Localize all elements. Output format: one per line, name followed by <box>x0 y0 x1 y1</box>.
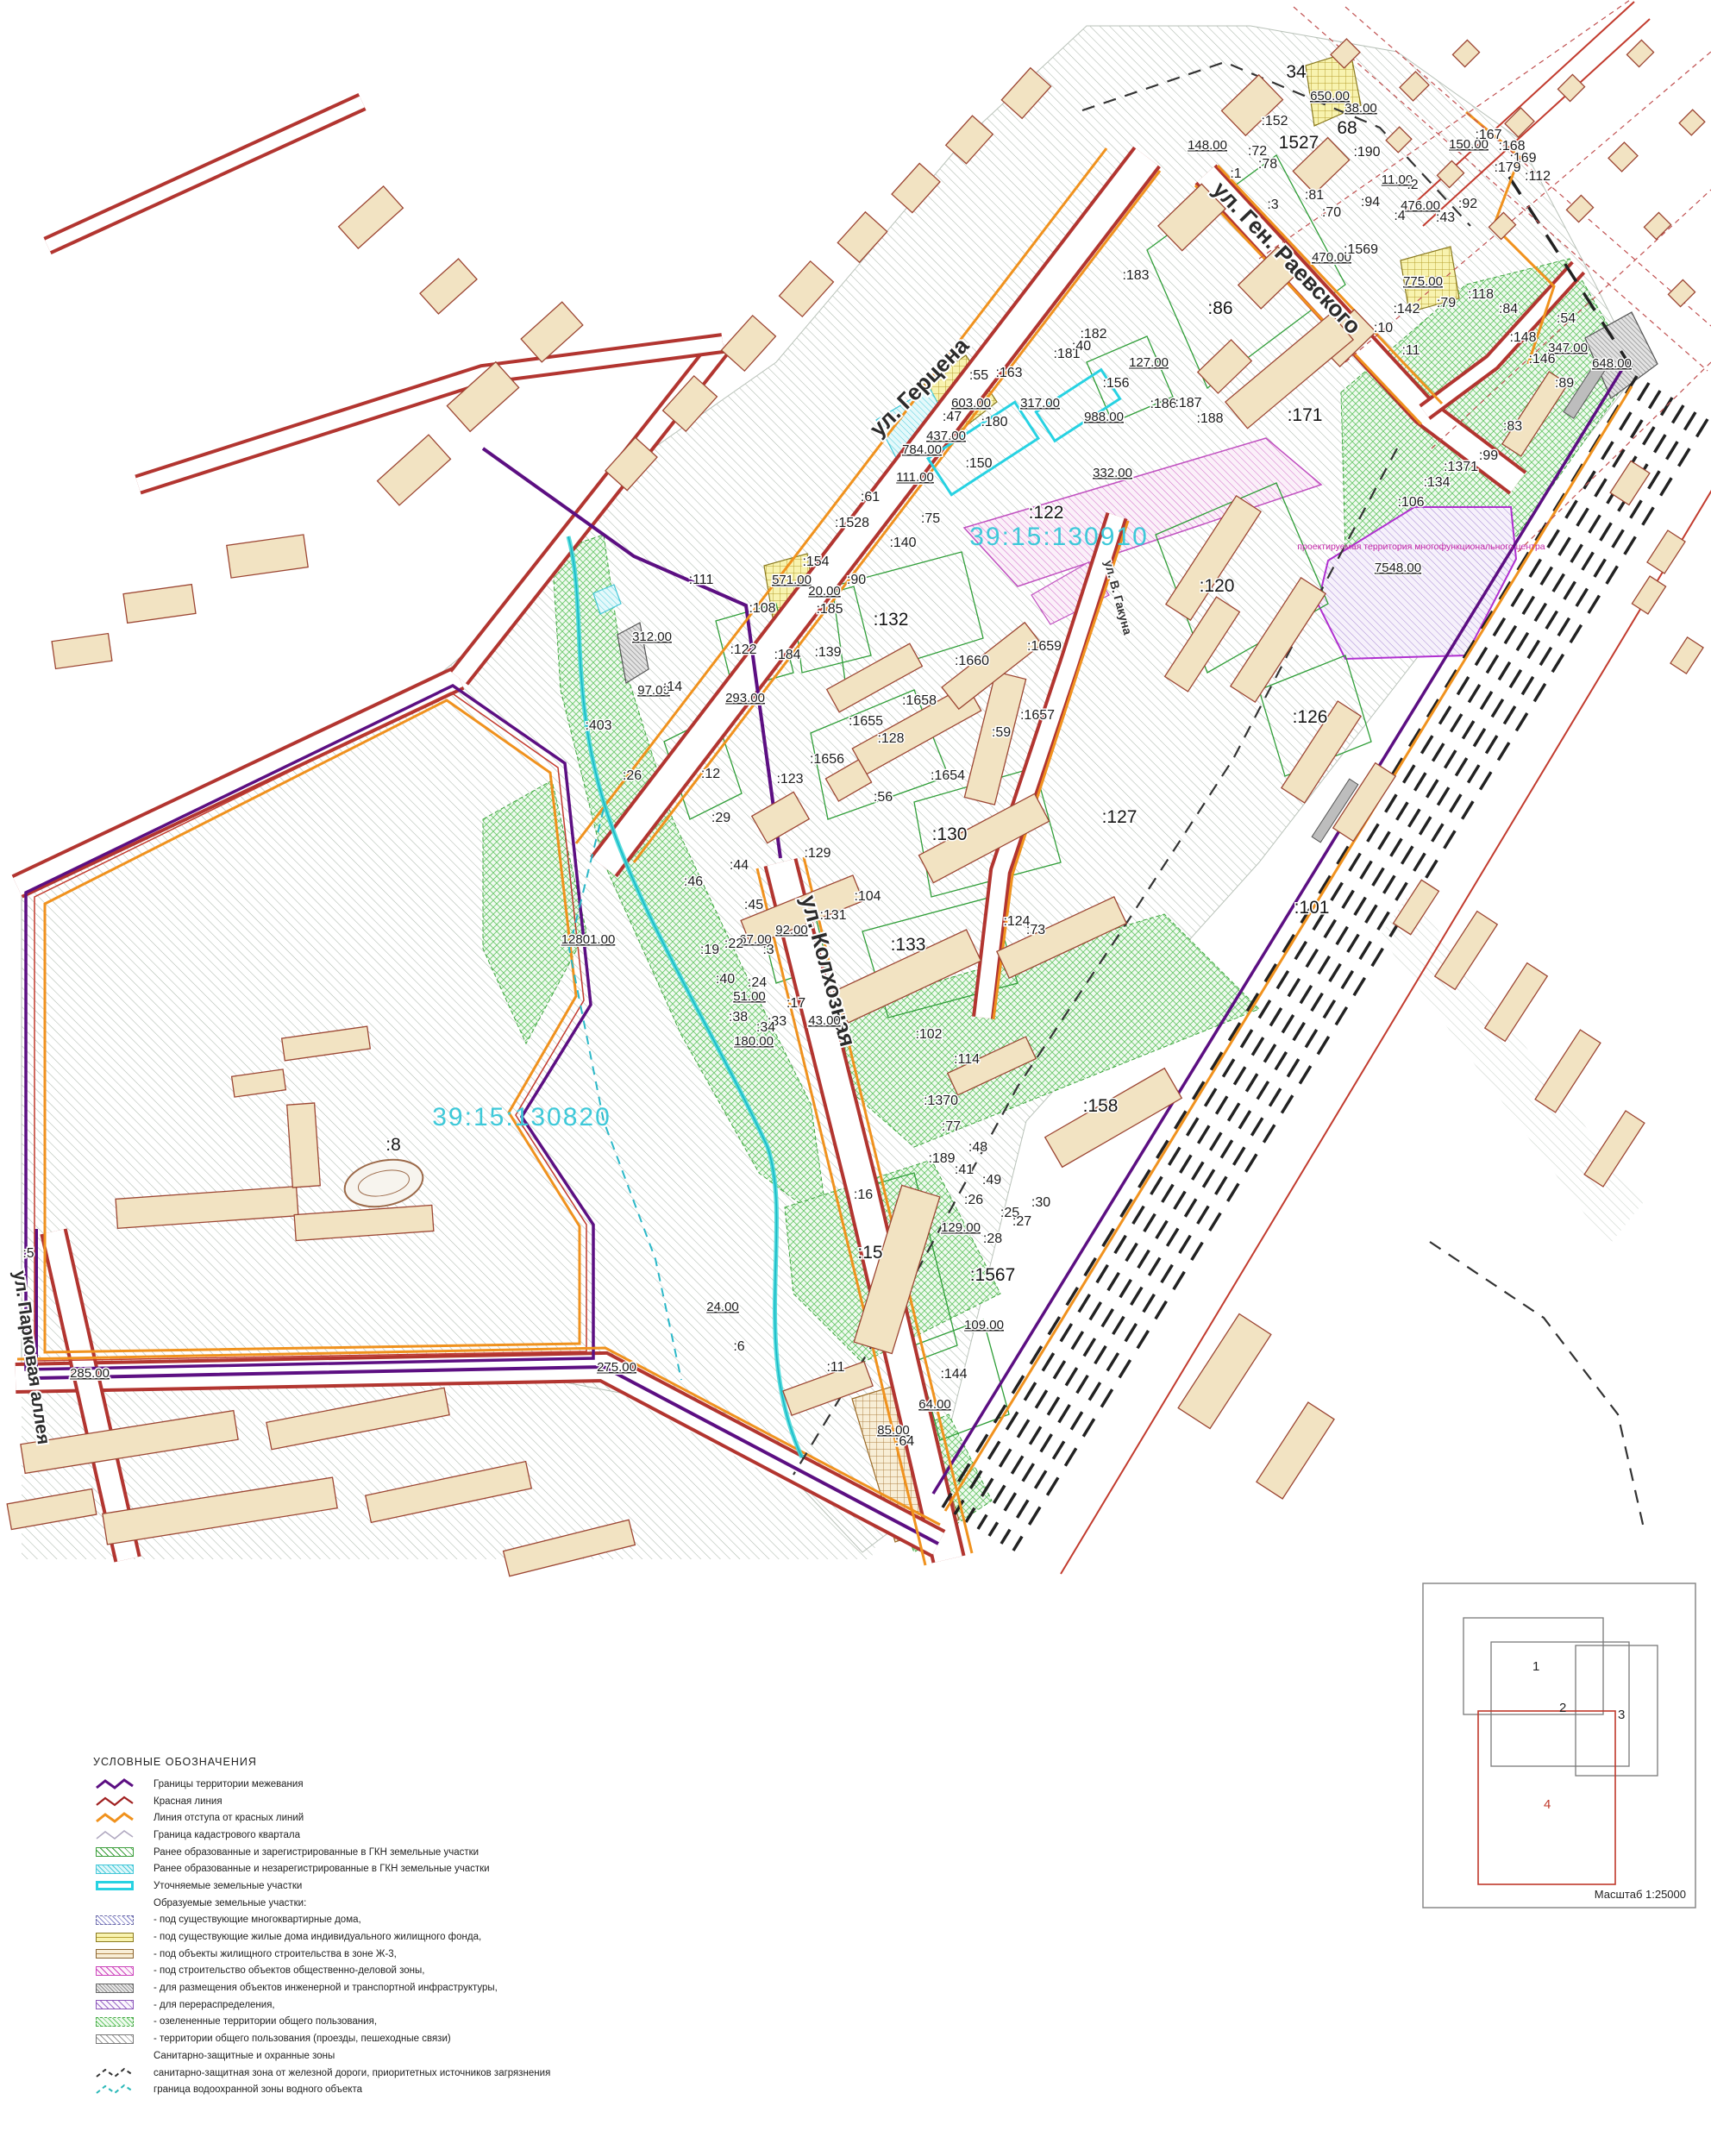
building-footprint <box>1668 279 1695 306</box>
parcel-number-label: :64 <box>895 1434 914 1449</box>
legend-item-label: санитарно-защитная зона от железной доро… <box>154 2068 550 2078</box>
parcel-number-label: :189 <box>928 1151 955 1166</box>
parcel-number-label: :139 <box>814 645 841 660</box>
legend-swatch-rect-purple-hatch <box>93 2000 136 2009</box>
overview-inset-map: 1 2 3 4 Масштаб 1:25000 <box>1422 1583 1698 1915</box>
parcel-number-label: :17 <box>787 996 805 1011</box>
dimension-label: 127.00 <box>1129 355 1169 370</box>
parcel-number-label: :146 <box>1528 352 1555 367</box>
parcel-number-label: :4 <box>1394 209 1405 223</box>
legend-swatch-zigzag-purple <box>93 1777 136 1791</box>
legend-item: Линия отступа от красных линий <box>93 1809 1042 1827</box>
legend-title: УСЛОВНЫЕ ОБОЗНАЧЕНИЯ <box>93 1756 1042 1768</box>
dimension-label: 648.00 <box>1592 356 1632 371</box>
parcel-number-label: :102 <box>915 1027 942 1042</box>
parcel-number-label: :152 <box>1261 114 1288 128</box>
inset-region-1-label: 1 <box>1532 1659 1539 1674</box>
legend-item-label: Образуемые земельные участки: <box>154 1898 306 1908</box>
dimension-label: 51.00 <box>733 989 766 1004</box>
parcel-number-label: :1657 <box>1020 708 1055 723</box>
building-footprint <box>1566 195 1593 222</box>
legend-swatch-rect-blue-hatch <box>93 1915 136 1925</box>
parcel-number-label: :79 <box>1437 296 1456 310</box>
parcel-number-label: :179 <box>1494 160 1520 175</box>
parcel-number-label: :16 <box>854 1188 873 1202</box>
legend-swatch-zigzag-gray <box>93 1828 136 1842</box>
parcel-number-label: :1659 <box>1027 639 1062 654</box>
parcel-number-label: :163 <box>995 366 1022 380</box>
parcel-number-label: :112 <box>1525 169 1551 184</box>
parcel-number-label: :118 <box>1468 287 1494 302</box>
building-footprint <box>123 585 196 624</box>
parcel-number-label: :8 <box>385 1135 401 1155</box>
parcel-number-label: :77 <box>942 1119 961 1134</box>
parcel-number-label: :46 <box>684 874 703 889</box>
dimension-label: 24.00 <box>706 1300 739 1314</box>
legend-item-label: Границы территории межевания <box>154 1779 304 1789</box>
legend-swatch-rect-cyan-hatch <box>93 1865 136 1874</box>
dimension-label: 111.00 <box>896 470 934 485</box>
building-footprint <box>1257 1402 1334 1499</box>
parcel-number-label: :56 <box>874 790 893 805</box>
parcel-number-label: :123 <box>776 772 803 787</box>
inset-region-2-label: 2 <box>1559 1701 1566 1715</box>
dimension-label: 180.00 <box>734 1034 774 1049</box>
legend-item-label: Линия отступа от красных линий <box>154 1813 304 1823</box>
parcel-number-label: :129 <box>804 846 830 861</box>
dimension-label: 148.00 <box>1188 138 1227 153</box>
dimension-label: 775.00 <box>1403 274 1443 289</box>
dimension-label: 38.00 <box>1344 101 1377 116</box>
legend-item: Ранее образованные и незарегистрированны… <box>93 1860 1042 1877</box>
page: ул. Герценаул. Ген. Раевскогоул. Колхозн… <box>0 0 1711 2156</box>
dimension-label: 285.00 <box>70 1366 110 1381</box>
legend-item-label: - территории общего пользования (проезды… <box>154 2034 451 2044</box>
parcel-number-label: :75 <box>921 511 940 526</box>
legend-swatch-rect-pink-hatch <box>93 1966 136 1976</box>
parcel-number-label: :6 <box>733 1339 744 1354</box>
parcel-number-label: :40 <box>1072 339 1091 354</box>
parcel-number-label: :122 <box>730 642 756 657</box>
parcel-number-label: :29 <box>711 811 730 825</box>
dimension-label: 7548.00 <box>1375 561 1421 575</box>
legend-item: Образуемые земельные участки: <box>93 1895 1042 1912</box>
legend-item: - под объекты жилищного строительства в … <box>93 1946 1042 1963</box>
parcel-number-label: :3 <box>762 943 774 957</box>
legend-item-label: граница водоохранной зоны водного объект… <box>154 2084 362 2095</box>
legend-swatch-zigzag-darkred <box>93 1795 136 1808</box>
building-footprint <box>1557 74 1584 101</box>
parcel-number-label: :150 <box>965 456 992 471</box>
parcel-number-label: :38 <box>729 1010 748 1025</box>
inset-region-3-label: 3 <box>1618 1708 1625 1722</box>
legend-swatch-rect-gray-hatch <box>93 2034 136 2044</box>
building-footprint <box>420 259 477 314</box>
legend-item: - для размещения объектов инженерной и т… <box>93 1979 1042 1996</box>
parcel-number-label: :99 <box>1479 448 1498 463</box>
legend-swatch-zigzag-orange <box>93 1811 136 1825</box>
parcel-number-label: :43 <box>1436 210 1455 225</box>
parcel-number-label: :73 <box>1026 923 1045 937</box>
legend-item-label: Уточняемые земельные участки <box>154 1881 302 1891</box>
parcel-number-label: :185 <box>816 602 843 617</box>
building-footprint <box>1647 530 1685 573</box>
legend-item: - территории общего пользования (проезды… <box>93 2030 1042 2047</box>
parcel-number-label: :186 <box>1150 397 1176 411</box>
parcel-number-label: :26 <box>623 768 642 783</box>
parcel-number-label: :144 <box>940 1367 967 1382</box>
parcel-number-label: :22 <box>724 937 743 951</box>
parcel-number-label: :19 <box>700 943 719 957</box>
legend-swatch-rect-green-cross <box>93 2017 136 2027</box>
parcel-number-label: :148 <box>1509 330 1536 345</box>
parcel-number-label: :83 <box>1503 419 1522 434</box>
building-footprint <box>227 535 308 578</box>
dimension-label: 476.00 <box>1401 198 1440 213</box>
dimension-label: 437.00 <box>926 429 966 443</box>
parcel-number-label: :154 <box>802 555 829 569</box>
inset-scale-label: Масштаб 1:25000 <box>1595 1888 1686 1901</box>
parcel-number-label: :180 <box>981 415 1007 429</box>
dimension-label: 12801.00 <box>561 932 616 947</box>
legend-swatch-rect-cyan-border <box>93 1881 136 1890</box>
parcel-number-label: :15 <box>857 1243 882 1263</box>
parcel-number-label: :89 <box>1555 376 1574 391</box>
dimension-label: 332.00 <box>1093 466 1132 480</box>
parcel-number-label: :120 <box>1200 576 1235 596</box>
parcel-number-label: :403 <box>585 718 611 733</box>
parcel-number-label: :131 <box>819 908 846 923</box>
parcel-number-label: :1569 <box>1344 242 1378 257</box>
parcel-number-label: :55 <box>969 368 988 383</box>
parcel-number-label: :108 <box>749 601 775 616</box>
dimension-label: 317.00 <box>1020 396 1060 411</box>
parcel-number-label: :94 <box>1361 195 1380 210</box>
parcel-number-label: :78 <box>1258 157 1277 172</box>
parcel-number-label: :3 <box>1267 197 1278 212</box>
parcel-number-label: :11 <box>1401 343 1420 358</box>
parcel-number-label: :1656 <box>810 752 844 767</box>
dimension-label: 312.00 <box>632 630 672 644</box>
parcel-number-label: :158 <box>1083 1096 1119 1116</box>
parcel-number-label: :114 <box>954 1052 980 1067</box>
parcel-number-label: :27 <box>1012 1214 1031 1229</box>
dimension-label: 571.00 <box>772 573 812 587</box>
building-footprint <box>1485 963 1548 1042</box>
parcel-number-label: :128 <box>877 731 904 746</box>
building-footprint <box>339 186 404 248</box>
parcel-number-label: :171 <box>1288 405 1323 425</box>
legend-item: Уточняемые земельные участки <box>93 1877 1042 1895</box>
legend-item: Границы территории межевания <box>93 1776 1042 1793</box>
legend-item-label: - озелененные территории общего пользова… <box>154 2016 377 2027</box>
parcel-number-label: :190 <box>1353 145 1380 160</box>
parcel-number-label: :127 <box>1102 807 1138 827</box>
legend-item: - под строительство объектов общественно… <box>93 1963 1042 1980</box>
legend-item: - под существующие многоквартирные дома, <box>93 1912 1042 1929</box>
parcel-number-label: :1 <box>1230 166 1241 181</box>
inset-region-4-label: 4 <box>1544 1797 1551 1812</box>
building-footprint <box>722 316 776 371</box>
parcel-number-label: :28 <box>983 1232 1002 1246</box>
parcel-number-label: :133 <box>891 935 926 955</box>
parcel-number-label: 1527 <box>1279 133 1319 153</box>
legend-item: - под существующие жилые дома индивидуал… <box>93 1928 1042 1946</box>
legend-item-label: - для перераспределения, <box>154 2000 275 2010</box>
parcel-number-label: :86 <box>1207 298 1232 318</box>
parcel-number-label: :24 <box>748 975 767 990</box>
parcel-number-label: :47 <box>943 410 962 424</box>
parcel-number-label: :26 <box>964 1193 983 1207</box>
building-footprint <box>378 435 451 505</box>
legend-item: Санитарно-защитные и охранные зоны <box>93 2047 1042 2065</box>
cadastral-quarter-label: 39:15:130910 <box>969 523 1149 551</box>
parcel-number-label: :1370 <box>924 1094 958 1108</box>
legend-swatch-rect-tan-grid <box>93 1949 136 1959</box>
parcel-number-label: :1654 <box>931 768 965 783</box>
parcel-number-label: :81 <box>1305 188 1324 203</box>
legend-swatch-rect-green-hatch <box>93 1847 136 1857</box>
parcel-number-label: :126 <box>1293 707 1328 727</box>
legend-item-label: - под строительство объектов общественно… <box>154 1965 425 1976</box>
parcel-number-label: 34 <box>1286 62 1307 82</box>
parcel-number-label: :30 <box>1031 1195 1050 1210</box>
building-footprint <box>1178 1314 1271 1429</box>
dimension-label: 109.00 <box>964 1318 1004 1332</box>
legend-item: Ранее образованные и зарегистрированные … <box>93 1844 1042 1861</box>
parcel-number-label: :90 <box>847 573 866 587</box>
legend-item-label: - под существующие многоквартирные дома, <box>154 1915 361 1925</box>
parcel-number-label: :54 <box>1557 311 1576 326</box>
parcel-number-label: :142 <box>1393 302 1420 317</box>
building-footprint <box>1535 1030 1601 1112</box>
dimension-label: 784.00 <box>902 442 942 457</box>
legend-swatch-rect-yellow-grid <box>93 1933 136 1942</box>
building-footprint <box>1608 142 1638 172</box>
inset-svg: 1 2 3 4 Масштаб 1:25000 <box>1422 1583 1698 1910</box>
parcel-number-label: :101 <box>1294 898 1330 918</box>
parcel-number-label: :59 <box>992 725 1011 740</box>
parcel-number-label: :40 <box>716 972 735 987</box>
building-footprint <box>1644 212 1670 239</box>
parcel-number-label: 68 <box>1337 118 1357 138</box>
cadastral-quarter-label: 39:15:130820 <box>432 1103 611 1131</box>
building-footprint <box>1679 110 1705 135</box>
dimension-label: 603.00 <box>951 396 991 411</box>
dimension-label: 275.00 <box>597 1360 636 1375</box>
parcel-number-label: :44 <box>730 858 749 873</box>
parcel-number-label: :104 <box>854 889 881 904</box>
parcel-number-label: :92 <box>1458 197 1477 211</box>
legend: УСЛОВНЫЕ ОБОЗНАЧЕНИЯ Границы территории … <box>93 1756 1042 2098</box>
dimension-label: 293.00 <box>725 691 765 705</box>
parcel-number-label: :41 <box>955 1163 974 1177</box>
building-footprint <box>52 634 112 669</box>
legend-item-label: Ранее образованные и незарегистрированны… <box>154 1864 490 1874</box>
zone-note-label: проектируемая территория многофункционал… <box>1297 542 1545 552</box>
parcel-number-label: :1655 <box>849 714 883 729</box>
dimension-label: 988.00 <box>1084 410 1124 424</box>
parcel-number-label: :106 <box>1397 495 1424 510</box>
building-footprint <box>1632 576 1665 614</box>
building-footprint <box>287 1103 321 1188</box>
legend-item-label: Красная линия <box>154 1796 222 1807</box>
parcel-number-label: :184 <box>774 648 800 662</box>
parcel-number-label: :12 <box>701 767 720 781</box>
parcel-number-label: :1371 <box>1444 460 1478 474</box>
parcel-number-label: :5 <box>22 1246 34 1261</box>
parcel-number-label: :1567 <box>970 1265 1016 1285</box>
legend-item-label: - для размещения объектов инженерной и т… <box>154 1983 498 1993</box>
parcel-number-label: :10 <box>1374 321 1393 335</box>
legend-item: Граница кадастрового квартала <box>93 1827 1042 1844</box>
legend-item: - озелененные территории общего пользова… <box>93 2014 1042 2031</box>
parcel-number-label: :188 <box>1196 411 1223 426</box>
dimension-label: 64.00 <box>918 1397 951 1412</box>
parcel-number-label: :111 <box>689 573 714 587</box>
city-plan-map: ул. Герценаул. Ген. Раевскогоул. Колхозн… <box>0 0 1711 1578</box>
legend-item: - для перераспределения, <box>93 1996 1042 2014</box>
parcel-number-label: :1660 <box>955 654 989 668</box>
legend-item-label: - под объекты жилищного строительства в … <box>154 1949 397 1959</box>
parcel-number-label: :140 <box>889 536 916 550</box>
legend-item: граница водоохранной зоны водного объект… <box>93 2081 1042 2098</box>
parcel-number-label: :122 <box>1029 503 1064 523</box>
parcel-number-label: :156 <box>1102 376 1129 391</box>
parcel-number-label: :84 <box>1499 302 1518 317</box>
parcel-number-label: :183 <box>1122 268 1149 283</box>
parcel-number-label: :187 <box>1175 396 1201 411</box>
legend-swatch-zigzag-teal-dash <box>93 2083 136 2096</box>
legend-swatch-rect-gray-dense <box>93 1984 136 1993</box>
parcel-number-label: :34 <box>756 1020 775 1035</box>
legend-item-label: Ранее образованные и зарегистрированные … <box>154 1847 479 1858</box>
parcel-number-label: :11 <box>826 1360 844 1375</box>
dimension-label: 92.00 <box>775 923 808 937</box>
dimension-label: 20.00 <box>808 584 841 599</box>
parcel-number-label: :14 <box>663 680 682 694</box>
legend-item-label: Граница кадастрового квартала <box>154 1830 300 1840</box>
parcel-number-label: :2 <box>1407 178 1418 192</box>
legend-rows: Границы территории межеванияКрасная лини… <box>93 1776 1042 2098</box>
parcel-number-label: :49 <box>982 1173 1001 1188</box>
legend-item-label: Санитарно-защитные и охранные зоны <box>154 2051 335 2061</box>
parcel-number-label: :61 <box>861 490 880 505</box>
legend-item-label: - под существующие жилые дома индивидуал… <box>154 1932 481 1942</box>
parcel-number-label: :130 <box>932 824 968 844</box>
parcel-number-label: :45 <box>744 898 763 912</box>
building-footprint <box>1626 40 1653 66</box>
parcel-number-label: :132 <box>874 610 909 630</box>
building-footprint <box>1670 637 1703 674</box>
legend-item: санитарно-защитная зона от железной доро… <box>93 2065 1042 2082</box>
building-footprint <box>1452 40 1479 66</box>
parcel-number-label: :70 <box>1322 205 1341 220</box>
parcel-number-label: :1528 <box>835 516 869 530</box>
parcel-number-label: :134 <box>1423 475 1450 490</box>
legend-item: Красная линия <box>93 1793 1042 1810</box>
parcel-number-label: :48 <box>968 1140 987 1155</box>
parcel-number-label: :1658 <box>902 693 937 708</box>
legend-swatch-zigzag-black-dash <box>93 2066 136 2080</box>
dimension-label: 650.00 <box>1310 89 1350 103</box>
dimension-label: 43.00 <box>808 1013 841 1028</box>
dimension-label: 129.00 <box>941 1220 981 1235</box>
